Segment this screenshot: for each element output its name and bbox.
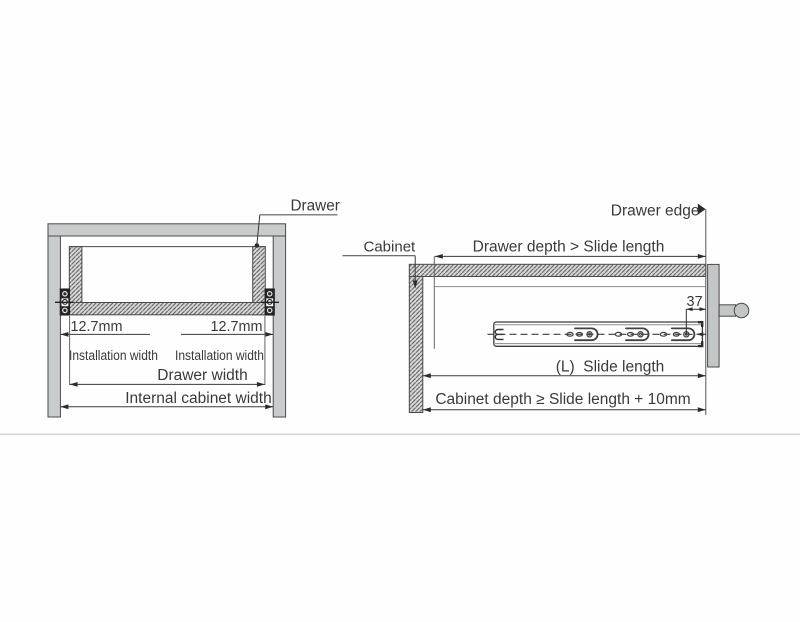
svg-text:12.7mm: 12.7mm [211,319,263,335]
svg-text:(L) Slide length: (L) Slide length [556,359,665,376]
svg-text:12.7mm: 12.7mm [71,319,123,335]
svg-text:Drawer depth > Slide length: Drawer depth > Slide length [473,239,665,256]
svg-text:Cabinet: Cabinet [364,239,417,256]
svg-text:Drawer width: Drawer width [157,367,247,384]
svg-text:Installation width: Installation width [69,347,158,363]
svg-text:Cabinet depth ≥ Slide length +: Cabinet depth ≥ Slide length + 10mm [435,391,690,408]
svg-text:Drawer edge: Drawer edge [611,203,700,220]
svg-text:Internal cabinet width: Internal cabinet width [125,390,271,407]
svg-text:Drawer: Drawer [291,198,340,215]
svg-text:Installation width: Installation width [175,347,264,363]
